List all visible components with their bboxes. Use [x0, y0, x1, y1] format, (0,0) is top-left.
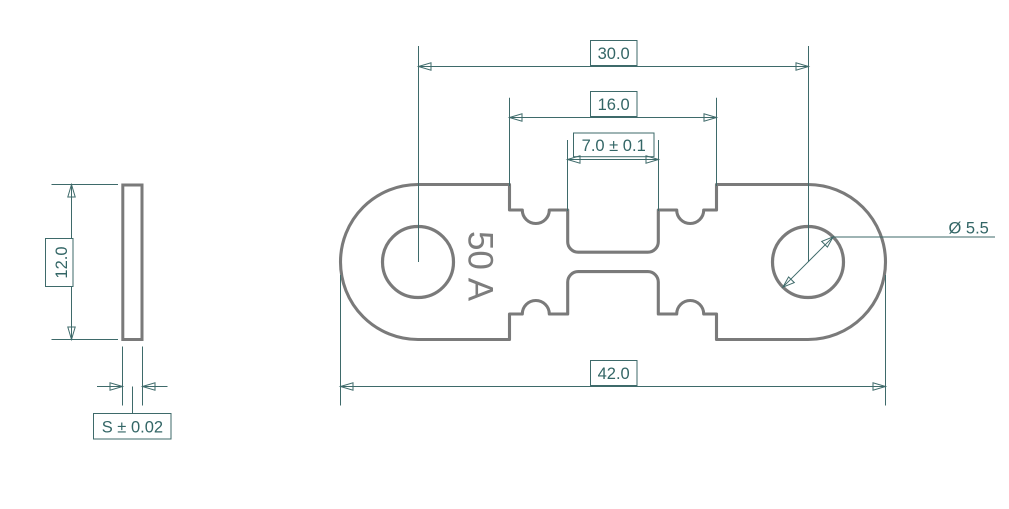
svg-text:50 A: 50 A — [461, 231, 500, 302]
svg-text:7.0 ± 0.1: 7.0 ± 0.1 — [582, 137, 646, 155]
svg-text:16.0: 16.0 — [598, 96, 630, 114]
svg-text:30.0: 30.0 — [598, 45, 630, 63]
svg-text:12.0: 12.0 — [53, 246, 71, 278]
svg-text:S ± 0.02: S ± 0.02 — [102, 418, 163, 436]
svg-text:42.0: 42.0 — [598, 365, 630, 383]
svg-text:Ø 5.5: Ø 5.5 — [949, 220, 989, 238]
